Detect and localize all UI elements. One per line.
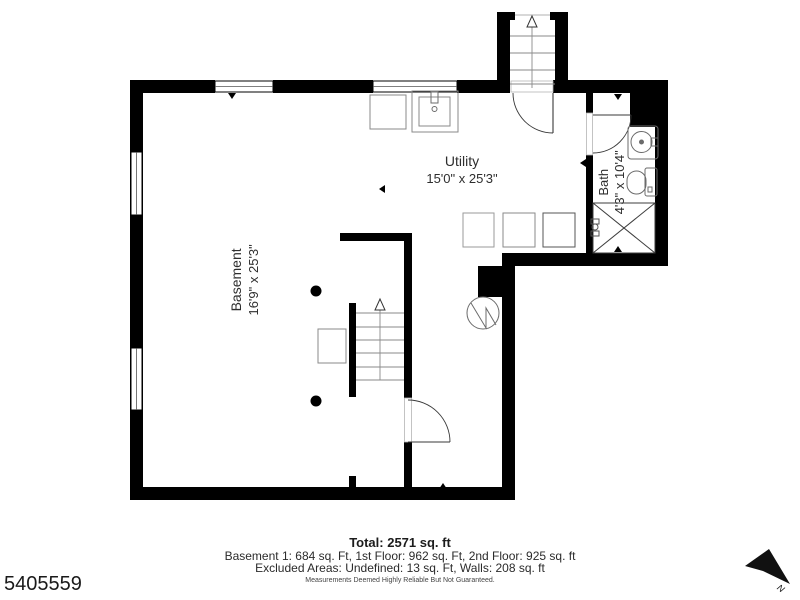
chimney-ne bbox=[630, 93, 655, 127]
floorplan-drawing: N bbox=[0, 0, 800, 600]
disclaimer-text: Measurements Deemed Highly Reliable But … bbox=[0, 577, 800, 584]
stairwell-top-stub-right bbox=[550, 12, 568, 20]
left-wall bbox=[130, 80, 143, 500]
top-wall-seg2 bbox=[273, 80, 373, 93]
excluded-areas-text: Excluded Areas: Undefined: 13 sq. Ft, Wa… bbox=[0, 561, 800, 575]
right-wall-lower bbox=[502, 253, 515, 500]
bath-room-label: Bath 4'3" x 10'4" bbox=[596, 127, 629, 237]
bath-divider-lower bbox=[586, 155, 593, 263]
water-heater-icon bbox=[467, 297, 499, 329]
wall-stub-bottom bbox=[349, 476, 356, 487]
equipment-square-1 bbox=[463, 213, 494, 247]
interior-wall-horizontal bbox=[340, 233, 412, 241]
bath-divider-upper bbox=[586, 93, 593, 113]
stairs-up-arrow-icon bbox=[527, 16, 537, 27]
basement-room-label: Basement 16'9" x 25'3" bbox=[228, 210, 262, 350]
stairs-up-arrow-icon bbox=[375, 299, 385, 310]
interior-wall-vertical-lower bbox=[404, 442, 412, 487]
room-name: Utility bbox=[392, 153, 532, 171]
stairwell-left-wall bbox=[497, 12, 510, 93]
washer bbox=[370, 95, 406, 129]
bath-door-opening bbox=[587, 113, 593, 155]
listing-id: 5405559 bbox=[4, 573, 82, 596]
equipment-square-2 bbox=[503, 213, 535, 247]
room-dims: 16'9" x 25'3" bbox=[246, 210, 262, 350]
stairwell-right-wall bbox=[555, 12, 568, 93]
interior-stairs bbox=[356, 299, 404, 380]
interior-door-arc bbox=[408, 400, 450, 442]
interior-wall-vertical-upper bbox=[404, 241, 412, 398]
equipment-square-3 bbox=[543, 213, 575, 247]
sink-icon bbox=[628, 126, 658, 159]
total-area-text: Total: 2571 sq. ft bbox=[0, 535, 800, 550]
utility-sink bbox=[412, 91, 458, 132]
freezer bbox=[318, 329, 346, 363]
stair-door-arc bbox=[513, 93, 553, 133]
north-label: N bbox=[775, 582, 787, 594]
support-column-1 bbox=[311, 286, 322, 297]
room-dims: 15'0" x 25'3" bbox=[392, 171, 532, 187]
stair-side-wall bbox=[349, 303, 356, 397]
room-name: Bath bbox=[596, 127, 612, 237]
utility-room-label: Utility 15'0" x 25'3" bbox=[392, 153, 532, 187]
exterior-stairs bbox=[510, 15, 555, 88]
top-wall-seg1 bbox=[130, 80, 215, 93]
top-wall-seg3 bbox=[457, 80, 502, 93]
toilet-icon bbox=[627, 168, 657, 196]
chimney-mid bbox=[478, 266, 502, 297]
bottom-wall bbox=[130, 487, 513, 500]
top-wall-seg4 bbox=[553, 80, 668, 93]
room-name: Basement bbox=[228, 210, 246, 350]
interior-door-opening bbox=[405, 398, 412, 442]
support-column-2 bbox=[311, 396, 322, 407]
room-dims: 4'3" x 10'4" bbox=[612, 127, 628, 237]
step-wall bbox=[502, 253, 668, 266]
stairwell-top-stub-left bbox=[497, 12, 515, 20]
